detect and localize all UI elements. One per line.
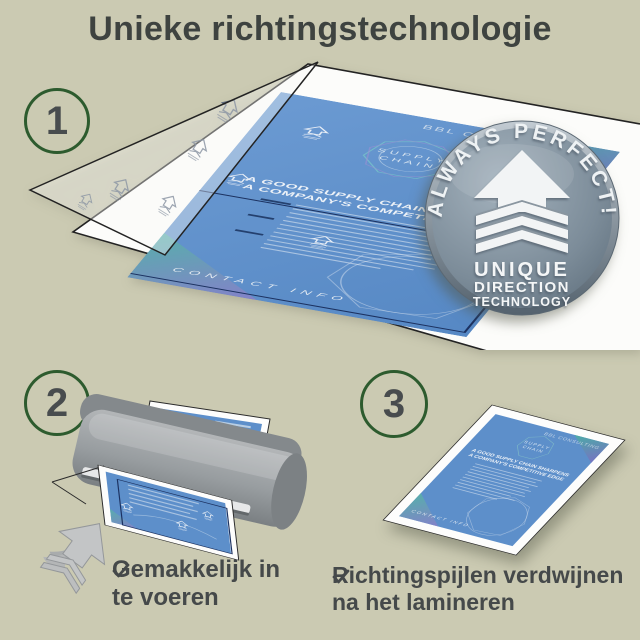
step2-caption-text: Gemakkelijk in te voeren — [112, 556, 280, 612]
page-title: Unieke richtingstechnologie — [0, 10, 640, 49]
check-icon — [112, 563, 130, 578]
check-icon — [332, 569, 350, 584]
badge-text-block: UNIQUE DIRECTION TECHNOLOGY — [473, 259, 571, 309]
laminated-result-illustration: SUPPLY CHAIN BBL CONSULTING A GOOD SUPPL… — [340, 385, 640, 580]
step-1-circle: 1 — [24, 88, 90, 154]
step-1-number: 1 — [46, 99, 68, 144]
badge-line1: UNIQUE — [474, 259, 570, 281]
always-perfect-badge: ALWAYS PERFECT! UNIQUE DIRECTION TECHNOL… — [420, 116, 632, 328]
pouch-edge-line — [52, 482, 86, 504]
step3-caption-text: Richtingspijlen verdwijnen na het lamine… — [332, 562, 623, 616]
caption-line: te voeren — [112, 584, 280, 612]
product-infographic: Unieke richtingstechnologie — [0, 0, 640, 640]
step3-caption: Richtingspijlen verdwijnen na het lamine… — [332, 562, 632, 616]
badge-line3: TECHNOLOGY — [473, 295, 571, 309]
caption-line: na het lamineren — [332, 589, 623, 616]
step2-caption: Gemakkelijk in te voeren — [112, 556, 322, 612]
badge-line2: DIRECTION — [474, 279, 570, 296]
caption-line: Gemakkelijk in — [112, 556, 280, 584]
laminated-card: SUPPLY CHAIN BBL CONSULTING A GOOD SUPPL… — [383, 405, 625, 555]
caption-line: Richtingspijlen verdwijnen — [332, 562, 623, 589]
